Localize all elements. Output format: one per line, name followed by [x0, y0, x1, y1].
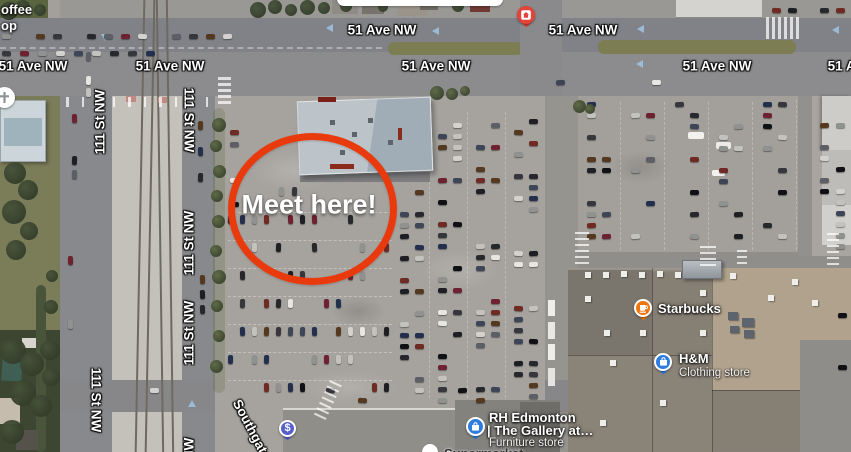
car	[778, 190, 787, 195]
car	[529, 372, 538, 377]
car	[336, 327, 341, 336]
car	[453, 123, 462, 128]
skylight	[640, 330, 646, 336]
road-label-111st: 111 St NW	[94, 90, 109, 155]
car	[514, 372, 523, 377]
dollar-icon: $	[279, 420, 296, 437]
car	[324, 355, 329, 364]
tree	[212, 118, 226, 132]
car	[514, 152, 523, 157]
car	[264, 299, 269, 308]
car	[415, 377, 424, 382]
car	[198, 173, 203, 182]
car	[491, 145, 500, 150]
skylight	[639, 272, 645, 278]
shopping-bag-icon	[471, 422, 480, 431]
car	[556, 80, 565, 85]
car	[476, 178, 485, 183]
car	[438, 354, 447, 359]
crosswalk-bar	[737, 250, 747, 252]
crosswalk-bar	[218, 77, 231, 80]
car	[719, 135, 728, 140]
car	[587, 135, 596, 140]
car	[491, 387, 500, 392]
parking-line	[708, 102, 709, 250]
car	[646, 157, 655, 162]
car	[87, 34, 96, 39]
car	[74, 51, 83, 56]
car	[491, 244, 500, 249]
tree	[0, 420, 24, 444]
car	[348, 327, 353, 336]
car	[56, 51, 65, 56]
car	[476, 343, 485, 348]
crosswalk-bar	[827, 233, 839, 235]
car	[400, 223, 409, 228]
hvac-unit	[368, 118, 373, 123]
car	[288, 327, 293, 336]
car	[631, 168, 640, 173]
car	[223, 34, 232, 39]
car	[400, 278, 409, 283]
car	[372, 383, 377, 392]
car	[476, 189, 485, 194]
skylight	[792, 279, 798, 285]
car	[438, 145, 447, 150]
skylight	[675, 272, 681, 278]
car	[529, 361, 538, 366]
car	[778, 102, 787, 107]
car	[690, 124, 699, 129]
car	[820, 156, 829, 161]
tree	[213, 330, 225, 342]
car	[476, 387, 485, 392]
crosswalk-bar	[827, 239, 839, 241]
traffic-arrow-icon	[828, 26, 839, 34]
parking-line	[752, 102, 753, 250]
car	[252, 327, 257, 336]
home-pin[interactable]	[517, 6, 535, 30]
car	[514, 361, 523, 366]
car	[198, 121, 203, 130]
mall-entrance-pavilion	[682, 260, 722, 279]
hm-pin[interactable]	[654, 353, 672, 377]
traffic-arrow-icon	[322, 24, 333, 32]
car	[438, 277, 447, 282]
car	[230, 142, 239, 147]
car	[587, 168, 596, 173]
crosswalk-bar	[218, 101, 231, 104]
car	[719, 179, 728, 184]
traffic-arrow-icon	[428, 27, 439, 35]
car	[104, 34, 113, 39]
hm-label[interactable]: H&M	[679, 352, 709, 367]
car	[240, 327, 245, 336]
car	[587, 157, 596, 162]
car	[438, 310, 447, 315]
car	[312, 355, 317, 364]
parking-line	[796, 100, 797, 250]
mall-road-right	[800, 340, 851, 452]
car	[348, 355, 353, 364]
crosswalk-bar	[700, 264, 716, 266]
mall-section-line	[652, 268, 653, 452]
tree	[210, 245, 222, 257]
car	[415, 344, 424, 349]
car	[476, 266, 485, 271]
car	[438, 244, 447, 249]
skylight	[700, 330, 706, 336]
car	[458, 388, 467, 393]
crosswalk-bar	[575, 250, 589, 252]
tree	[210, 360, 223, 373]
car	[514, 174, 523, 179]
hvac-unit	[388, 140, 393, 145]
car	[38, 51, 47, 56]
car	[838, 313, 847, 318]
car	[836, 8, 845, 13]
trailer	[548, 300, 555, 316]
starbucks-pin[interactable]	[634, 299, 652, 323]
car	[372, 327, 377, 336]
car	[200, 275, 205, 284]
car	[453, 145, 462, 150]
car	[529, 262, 538, 267]
car	[438, 321, 447, 326]
tree	[42, 368, 60, 386]
trailer	[548, 322, 555, 339]
trailer	[548, 344, 555, 360]
car	[602, 168, 611, 173]
car	[529, 119, 538, 124]
tree	[211, 190, 223, 202]
car	[110, 51, 119, 56]
car	[228, 355, 233, 364]
car	[763, 124, 772, 129]
parking-line	[228, 380, 392, 381]
car	[514, 339, 523, 344]
white-callout-partial	[337, 0, 503, 6]
car	[734, 234, 743, 239]
car	[690, 113, 699, 118]
car	[646, 201, 655, 206]
car	[400, 355, 409, 360]
car	[198, 147, 203, 156]
car	[529, 141, 538, 146]
car	[453, 222, 462, 227]
car	[838, 365, 847, 370]
car	[778, 168, 787, 173]
car	[476, 255, 485, 260]
rh-sublabel[interactable]: Furniture store	[489, 437, 564, 450]
car	[324, 299, 329, 308]
car	[438, 398, 447, 403]
tree	[212, 270, 226, 284]
skylight	[585, 296, 591, 302]
car	[453, 288, 462, 293]
car	[772, 8, 781, 13]
shopping-bag-icon	[659, 357, 668, 366]
crosswalk-bar	[700, 246, 716, 248]
car	[529, 207, 538, 212]
car	[252, 355, 257, 364]
stain	[610, 150, 670, 184]
car	[312, 327, 317, 336]
crosswalk-bar	[827, 257, 839, 259]
car	[820, 123, 829, 128]
car	[146, 51, 155, 56]
tree	[6, 240, 26, 260]
car	[778, 135, 787, 140]
car	[453, 178, 462, 183]
traffic-arrow-icon	[633, 25, 644, 33]
car	[529, 339, 538, 344]
car	[646, 135, 655, 140]
car	[514, 196, 523, 201]
car	[719, 201, 728, 206]
skylight	[604, 330, 610, 336]
car	[2, 51, 11, 56]
car	[358, 398, 367, 403]
car	[72, 156, 77, 165]
church-pin[interactable]	[0, 87, 15, 108]
tree	[250, 2, 266, 18]
meet-here-text: Meet here!	[241, 192, 376, 219]
tree	[430, 86, 444, 100]
poi-label-line: offee	[1, 3, 32, 18]
skylight	[812, 300, 818, 306]
crosswalk-bar	[796, 17, 799, 39]
car	[529, 251, 538, 256]
road-label-111st: 111 St NW	[183, 301, 198, 366]
tree	[211, 300, 223, 312]
satellite-map[interactable]: 51 Ave NW 51 Ave NW 51 Ave NW 51 Ave NW …	[0, 0, 851, 452]
poi-label-line: op	[1, 19, 32, 34]
car	[763, 146, 772, 151]
car	[529, 196, 538, 201]
car	[820, 178, 829, 183]
road-label-51ave: 51 Ave NW	[402, 60, 471, 75]
skylight	[603, 272, 609, 278]
car	[86, 76, 91, 85]
car	[300, 383, 305, 392]
crosswalk-bar	[737, 262, 747, 264]
car	[86, 52, 91, 61]
car	[438, 288, 447, 293]
hvac-unit	[744, 330, 754, 338]
car	[587, 201, 596, 206]
road-label-51ave: 51 Ave NW	[348, 24, 417, 39]
car	[719, 168, 728, 173]
parking-line	[467, 112, 468, 398]
mall-section-line	[712, 268, 713, 452]
starbucks-label[interactable]: Starbucks	[658, 302, 721, 317]
car	[72, 170, 77, 179]
coffee-cup-icon	[639, 304, 648, 313]
crosswalk-bar	[175, 97, 178, 107]
trailer	[548, 368, 555, 386]
car	[514, 251, 523, 256]
traffic-arrow-icon	[632, 60, 643, 68]
tree	[44, 300, 58, 314]
crosswalk-bar	[778, 17, 781, 39]
car	[491, 299, 500, 304]
tree	[446, 88, 458, 100]
skylight	[657, 271, 663, 277]
car	[734, 146, 743, 151]
crosswalk-bar	[827, 263, 839, 265]
car	[415, 388, 424, 393]
car	[652, 80, 661, 85]
road-label-111st: 111 St NW	[183, 211, 198, 276]
road-label-51ave: 51 Ave NW	[683, 60, 752, 75]
car	[336, 355, 341, 364]
car	[240, 299, 245, 308]
car	[476, 310, 485, 315]
car	[820, 8, 829, 13]
poi-label-coffee-clipped[interactable]: offee op	[1, 3, 32, 34]
tree	[318, 2, 330, 14]
car	[264, 383, 269, 392]
crosswalk-bar	[66, 97, 69, 107]
car	[415, 311, 424, 316]
crosswalk-bar	[218, 89, 231, 92]
car	[763, 223, 772, 228]
car	[72, 114, 77, 123]
car	[453, 156, 462, 161]
car	[138, 34, 147, 39]
road-label-51ave: 51 Ave NW	[0, 60, 67, 75]
road-label-51ave-clipped: 51 Ave NW	[828, 60, 851, 75]
car	[529, 383, 538, 388]
store-sign	[318, 97, 336, 102]
car	[288, 299, 293, 308]
cross-icon	[0, 92, 10, 103]
crosswalk-bar	[784, 17, 787, 39]
car	[514, 317, 523, 322]
car	[415, 256, 424, 261]
crosswalk-bar	[790, 17, 793, 39]
parking-line	[228, 352, 392, 353]
hm-sublabel[interactable]: Clothing store	[679, 367, 750, 380]
tree	[18, 180, 38, 200]
road-label-51ave: 51 Ave NW	[549, 24, 618, 39]
lane-dash	[0, 47, 382, 49]
car	[276, 383, 281, 392]
car	[734, 212, 743, 217]
hvac-unit	[330, 120, 335, 125]
skylight	[700, 290, 706, 296]
skylight	[621, 271, 627, 277]
tree	[268, 0, 282, 14]
tree	[285, 4, 297, 16]
car	[690, 212, 699, 217]
car	[836, 211, 845, 216]
car	[150, 388, 159, 393]
car	[276, 327, 281, 336]
crosswalk-bar	[144, 97, 147, 107]
car	[763, 102, 772, 107]
car	[453, 134, 462, 139]
car	[491, 332, 500, 337]
parking-line	[228, 296, 392, 297]
car	[86, 88, 91, 97]
tree	[20, 352, 44, 376]
car	[836, 123, 845, 128]
car	[415, 245, 424, 250]
car	[415, 289, 424, 294]
car	[476, 321, 485, 326]
car	[240, 271, 245, 280]
crosswalk-bar	[737, 256, 747, 258]
car	[300, 327, 305, 336]
car	[602, 157, 611, 162]
car	[336, 299, 341, 308]
car	[675, 102, 684, 107]
crosswalk-bar	[218, 83, 231, 86]
parking-line	[664, 102, 665, 250]
car	[200, 305, 205, 314]
car	[719, 146, 728, 151]
car	[491, 321, 500, 326]
hvac-unit	[352, 132, 357, 137]
crosswalk-bar	[575, 244, 589, 246]
tree	[210, 140, 222, 152]
hvac-unit	[730, 326, 739, 333]
car	[836, 189, 845, 194]
car	[438, 365, 447, 370]
car	[264, 327, 269, 336]
tree	[460, 86, 470, 96]
parking-line	[620, 102, 621, 250]
road-label-111st: 111 St NW	[181, 88, 196, 153]
median-grass	[598, 40, 796, 54]
car	[836, 222, 845, 227]
car	[476, 145, 485, 150]
car	[360, 327, 365, 336]
rh-pin[interactable]	[466, 417, 485, 442]
car	[53, 34, 62, 39]
car	[128, 51, 137, 56]
car	[230, 130, 239, 135]
car	[453, 310, 462, 315]
car	[288, 383, 293, 392]
median-grass	[388, 42, 523, 55]
car	[264, 355, 269, 364]
car	[121, 34, 130, 39]
car	[514, 328, 523, 333]
crosswalk-bar	[700, 258, 716, 260]
skylight	[730, 273, 736, 279]
car	[476, 398, 485, 403]
crosswalk-bar	[700, 252, 716, 254]
car	[20, 51, 29, 56]
car	[400, 322, 409, 327]
crosswalk-bar	[82, 97, 85, 107]
car	[415, 223, 424, 228]
road-label-111st: 111 St NW	[88, 368, 103, 433]
car	[836, 167, 845, 172]
traffic-arrow-icon	[188, 396, 196, 407]
car	[453, 332, 462, 337]
crosswalk-bar	[766, 17, 769, 39]
car	[400, 212, 409, 217]
car	[415, 212, 424, 217]
car	[602, 234, 611, 239]
skylight	[660, 400, 666, 406]
money-pin[interactable]: $	[279, 420, 296, 443]
house-icon	[521, 10, 531, 20]
